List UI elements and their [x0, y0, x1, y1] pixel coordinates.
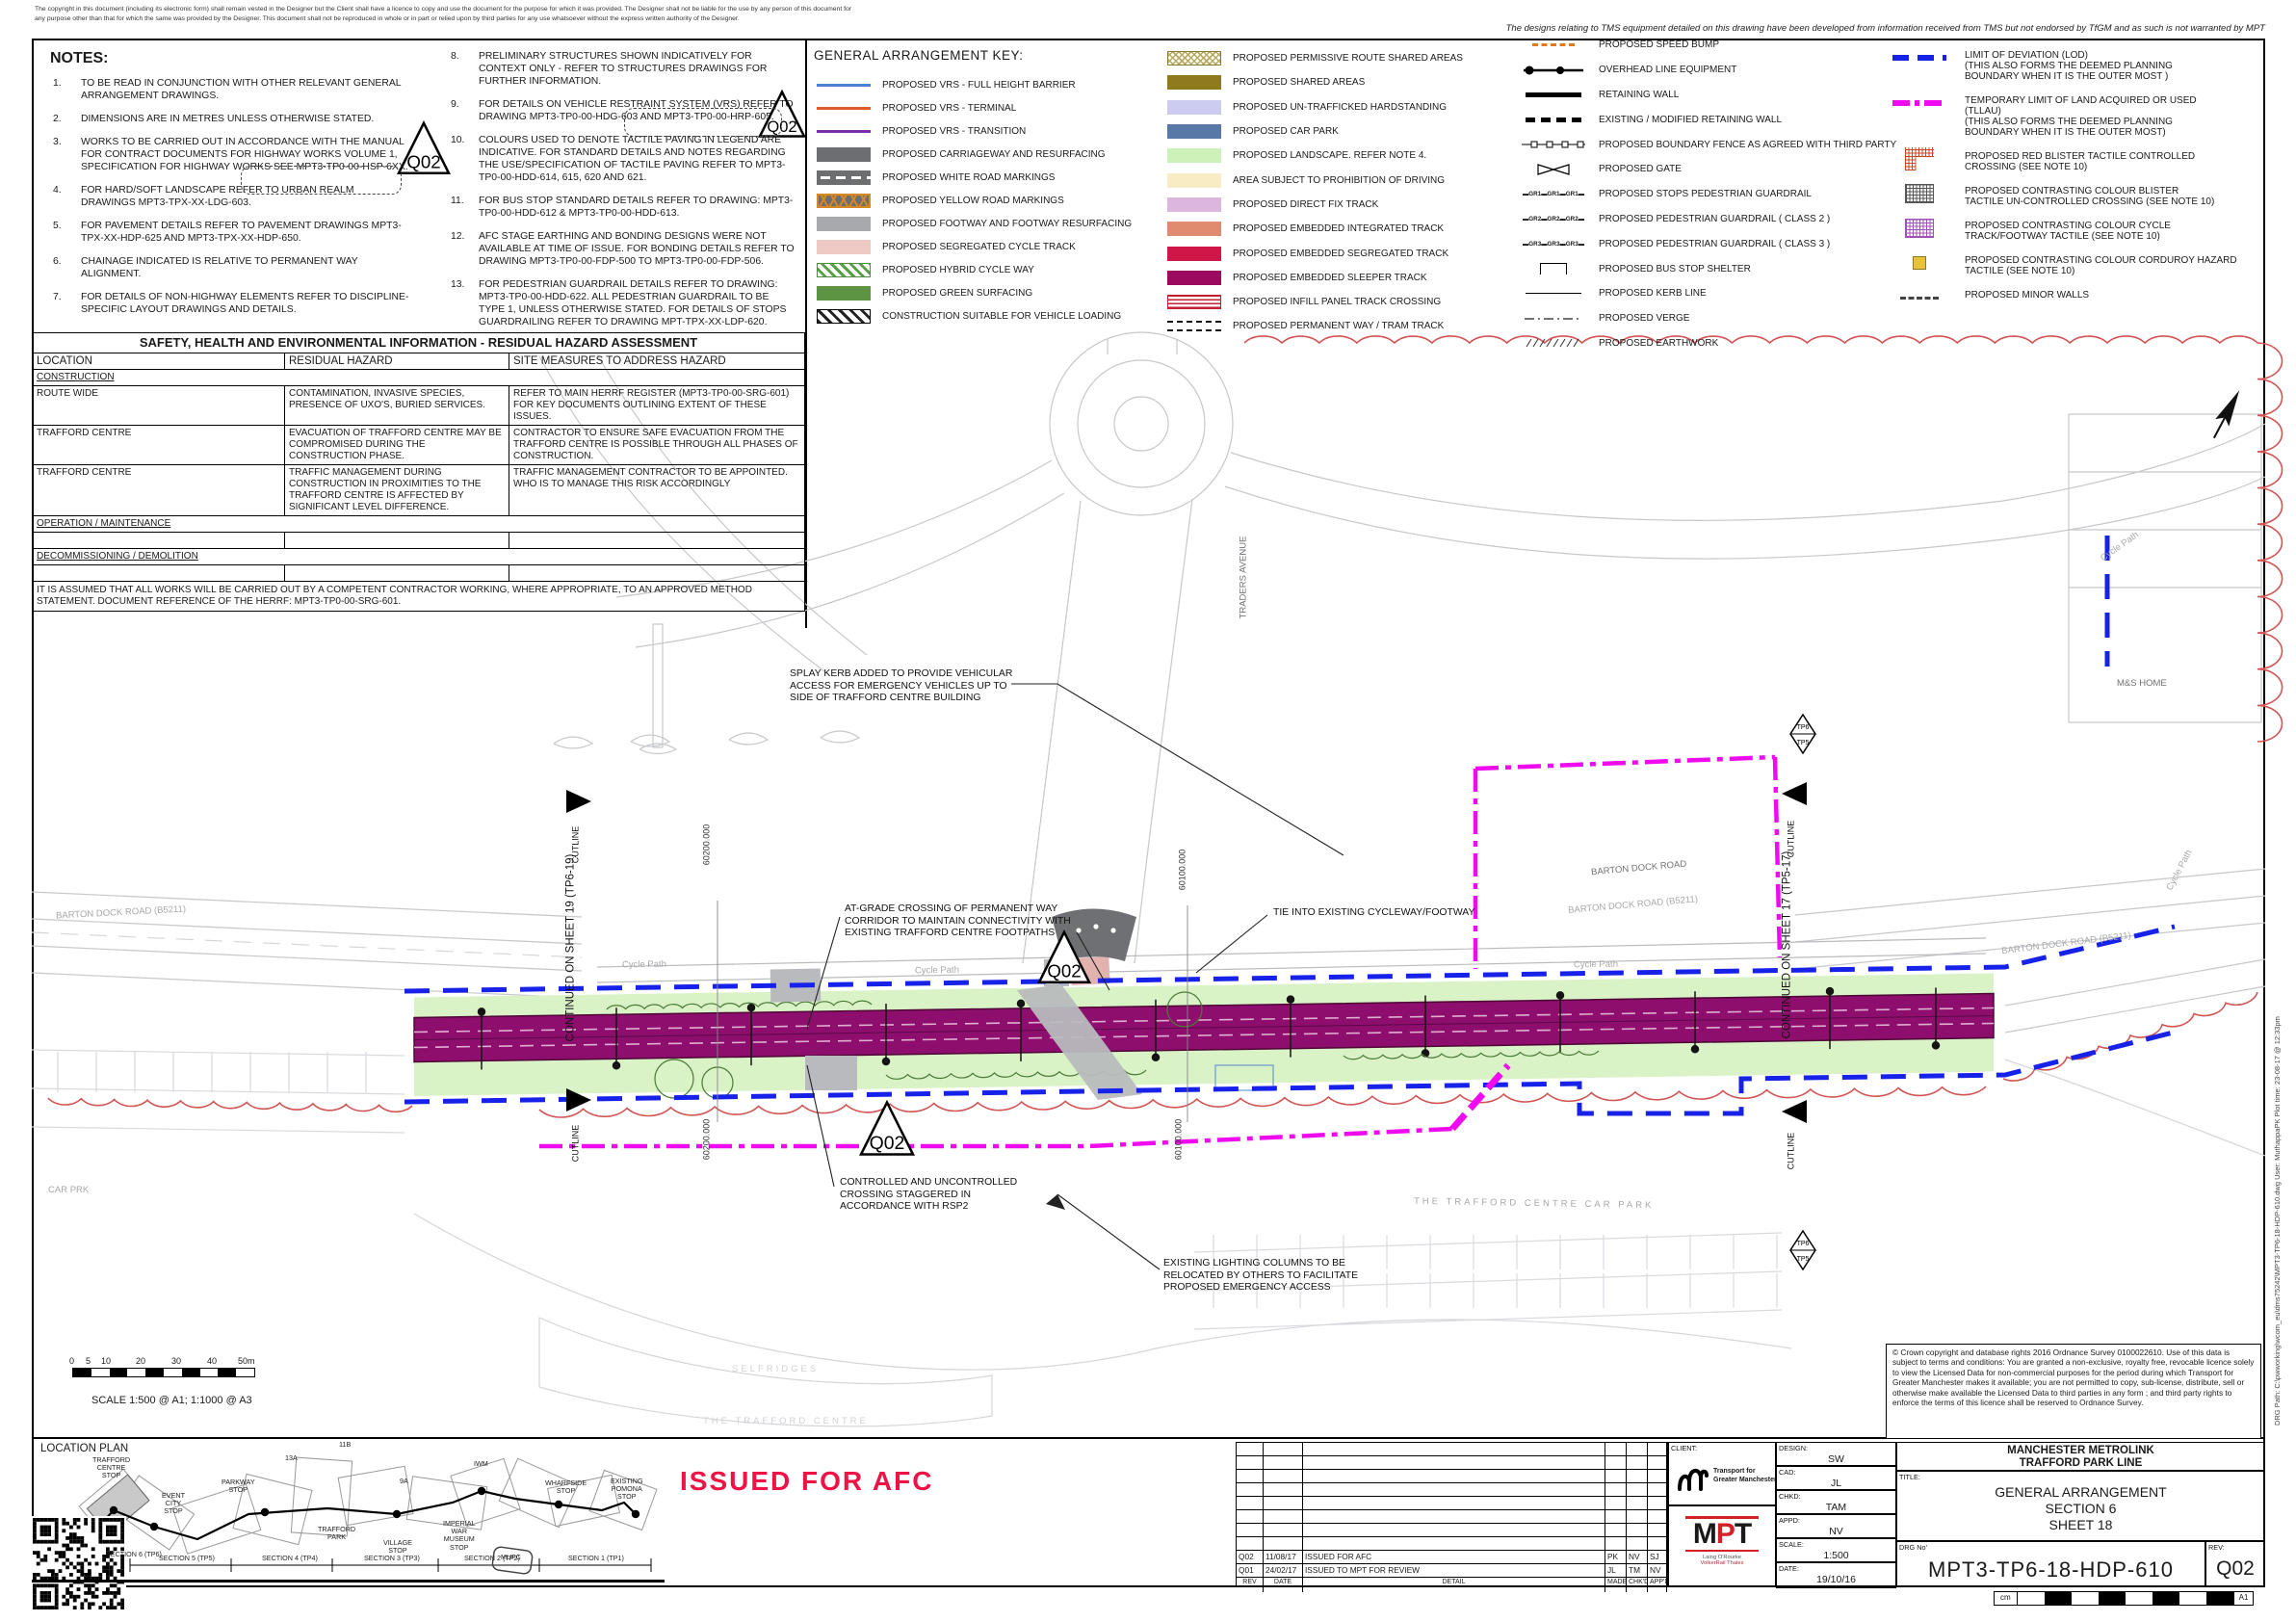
key-item: PROPOSED DIRECT FIX TRACK: [1167, 193, 1463, 217]
revision-cell: [1648, 1510, 1667, 1523]
field-label: DESIGN:: [1779, 1444, 1808, 1452]
field-label: CAD:: [1779, 1468, 1795, 1477]
revision-row: Q0124/02/17ISSUED TO MPT FOR REVIEWJLTMN…: [1237, 1563, 1667, 1577]
plan-annotation: CONTROLLED AND UNCONTROLLED CROSSING STA…: [840, 1177, 1017, 1214]
location-plan-stop-label: PARKWAY STOP: [222, 1478, 255, 1494]
tram-corridor: [414, 974, 1994, 1099]
scale-bar-strip: [72, 1368, 255, 1377]
key-item: PROPOSED CONTRASTING COLOUR CYCLE TRACK/…: [1886, 221, 2237, 242]
key-item: PROPOSED CARRIAGEWAY AND RESURFACING: [817, 143, 1132, 166]
note-number: 12.: [451, 230, 470, 268]
key-item: RETAINING WALL: [1520, 83, 1896, 108]
key-item: PROPOSED RED BLISTER TACTILE CONTROLLED …: [1886, 151, 2237, 172]
key-item-label: PROPOSED PEDESTRIAN GUARDRAIL ( CLASS 2 …: [1599, 214, 1830, 224]
scale-bar-segment: [91, 1369, 110, 1376]
note-item: 11.FOR BUS STOP STANDARD DETAILS REFER T…: [451, 195, 796, 220]
scale-bar-label: 50m: [238, 1356, 255, 1366]
key-item: PROPOSED VRS - FULL HEIGHT BARRIER: [817, 73, 1132, 96]
field-cell-chkd: CHKD:TAM: [1776, 1490, 1896, 1514]
key-swatch: [1167, 51, 1221, 65]
field-label: DATE:: [1779, 1564, 1799, 1573]
location-plan-stop-label: WHARFSIDE STOP: [545, 1479, 587, 1495]
revision-cell: [1605, 1443, 1627, 1455]
drg-path-text: DRG Path: C:\pwworking\wcom_eu\dms75242\…: [2273, 1016, 2282, 1426]
revision-cell: [1264, 1443, 1303, 1455]
chainage-label: 60100.000: [1173, 1119, 1183, 1161]
q02-triangle: Q02: [861, 1103, 913, 1155]
revision-cell: [1605, 1497, 1627, 1509]
key-swatch: [817, 286, 871, 301]
revision-cell: REV: [1237, 1578, 1264, 1592]
key-item: PROPOSED VRS - TRANSITION: [817, 119, 1132, 143]
note-number: 9.: [451, 98, 470, 123]
field-label: APPD:: [1779, 1516, 1800, 1525]
hazard-footnote: IT IS ASSUMED THAT ALL WORKS WILL BE CAR…: [33, 582, 804, 611]
scale-bar-label: 30: [171, 1356, 181, 1366]
corduroy-icon: [1886, 255, 1953, 271]
mpt-sub2: VolkerRail Thales: [1669, 1560, 1775, 1566]
revision-cell: [1264, 1537, 1303, 1550]
revision-cell: [1237, 1456, 1264, 1469]
key-item-label: PROPOSED FOOTWAY AND FOOTWAY RESURFACING: [882, 219, 1132, 229]
revision-cell: ISSUED TO MPT FOR REVIEW: [1303, 1564, 1605, 1577]
revision-cell: [1648, 1537, 1667, 1550]
hazard-header-row: LOCATIONRESIDUAL HAZARDSITE MEASURES TO …: [33, 353, 804, 370]
revision-cell: [1264, 1497, 1303, 1509]
scale-bar-segment: [164, 1369, 182, 1376]
revision-cell: [1237, 1510, 1264, 1523]
note-item: 10.COLOURS USED TO DENOTE TACTILE PAVING…: [451, 134, 796, 184]
revision-cell: [1237, 1524, 1264, 1536]
notes-title: NOTES:: [50, 50, 108, 67]
key-item: PROPOSED BUS STOP SHELTER: [1520, 256, 1896, 281]
revision-cell: APP'D: [1648, 1578, 1667, 1592]
svg-text:TP6: TP6: [1797, 724, 1810, 731]
key-item-label: PROPOSED CONTRASTING COLOUR BLISTER TACT…: [1965, 186, 2214, 207]
tfgm-logo-icon: [1677, 1464, 1709, 1493]
key-item-label: PROPOSED EMBEDDED INTEGRATED TRACK: [1233, 223, 1444, 234]
location-plan-stop-label: EXISTING POMONA STOP: [611, 1478, 643, 1502]
key-item: PROPOSED WHITE ROAD MARKINGS: [817, 166, 1132, 189]
key-swatch: [817, 240, 871, 254]
note3-revision-cloud: [241, 166, 402, 195]
hazard-table-title: SAFETY, HEALTH AND ENVIRONMENTAL INFORMA…: [33, 332, 804, 353]
revision-cell: [1627, 1510, 1648, 1523]
drg-no-label: DRG No': [1899, 1543, 1927, 1552]
note-text: COLOURS USED TO DENOTE TACTILE PAVING IN…: [479, 134, 796, 184]
drg-no-value: MPT3-TP6-18-HDP-610: [1897, 1557, 2205, 1583]
key-item-label: PROPOSED BUS STOP SHELTER: [1599, 264, 1751, 275]
key-swatch: [817, 170, 871, 185]
hazard-cell: [33, 533, 285, 548]
revision-cell: SJ: [1648, 1551, 1667, 1563]
key-item: PROPOSED BOUNDARY FENCE AS AGREED WITH T…: [1520, 132, 1896, 157]
title-label: TITLE:: [1899, 1473, 1920, 1481]
location-plan-plot-label: 9A: [400, 1478, 408, 1485]
hazard-cell: TRAFFIC MANAGEMENT CONTRACTOR TO BE APPO…: [509, 465, 804, 515]
key-item-label: PROPOSED DIRECT FIX TRACK: [1233, 199, 1378, 210]
revision-row: [1237, 1469, 1667, 1482]
scale-bar-label: 40: [207, 1356, 217, 1366]
redblister-icon: [1886, 151, 1953, 167]
scale-bar-segment: [73, 1369, 91, 1376]
key-item-label: PROPOSED GREEN SURFACING: [882, 288, 1032, 299]
client-name: Transport for Greater Manchester: [1713, 1468, 1777, 1484]
field-cell-appd: APPD:NV: [1776, 1514, 1896, 1538]
key-item: PROPOSED UN-TRAFFICKED HARDSTANDING: [1167, 95, 1463, 119]
rev-value: Q02: [2206, 1557, 2264, 1581]
qr-code: [31, 1516, 126, 1611]
key-item: PROPOSED SHARED AREAS: [1167, 70, 1463, 94]
key-item-label: OVERHEAD LINE EQUIPMENT: [1599, 65, 1736, 75]
revision-cell: [1648, 1483, 1667, 1496]
scale-bar-segment: [127, 1369, 145, 1376]
ruler-segments: [2018, 1591, 2234, 1606]
revision-cell: [1605, 1524, 1627, 1536]
key-item-label: PROPOSED WHITE ROAD MARKINGS: [882, 172, 1055, 183]
location-plan-stop-label: IWM: [474, 1460, 488, 1468]
key-item: PROPOSED CONTRASTING COLOUR BLISTER TACT…: [1886, 186, 2237, 207]
hazard-cell: CONTRACTOR TO ENSURE SAFE EVACUATION FRO…: [509, 426, 804, 464]
mpt-logo: MPT: [1669, 1519, 1775, 1550]
road-label: M&S HOME: [2117, 678, 2167, 689]
key-item-label: PROPOSED MINOR WALLS: [1965, 290, 2089, 301]
revision-cell: [1605, 1483, 1627, 1496]
contractor-cell: MPT Laing O'Rourke VolkerRail Thales: [1668, 1505, 1776, 1587]
key-column-1: PROPOSED VRS - FULL HEIGHT BARRIERPROPOS…: [817, 73, 1132, 327]
revision-cell: [1303, 1443, 1605, 1455]
revision-row: [1237, 1509, 1667, 1523]
scale-bar-segment: [218, 1369, 236, 1376]
note-number: 11.: [451, 195, 470, 220]
field-cell-date: DATE:19/10/16: [1776, 1562, 1896, 1588]
hazard-row: ROUTE WIDECONTAMINATION, INVASIVE SPECIE…: [33, 386, 804, 426]
project-line1: MANCHESTER METROLINK: [1897, 1445, 2264, 1457]
revision-cell: Q01: [1237, 1564, 1264, 1577]
chainage-label: 60200.000: [701, 1119, 711, 1161]
mpt-logo-bar-bottom: [1685, 1550, 1759, 1552]
key-item: PROPOSED YELLOW ROAD MARKINGS: [817, 189, 1132, 212]
svg-text:Q02: Q02: [1047, 961, 1081, 981]
hazard-column-header: SITE MEASURES TO ADDRESS HAZARD: [509, 353, 804, 369]
revision-cell: [1264, 1524, 1303, 1536]
key-swatch: [1167, 222, 1221, 236]
note-text: CHAINAGE INDICATED IS RELATIVE TO PERMAN…: [81, 255, 409, 280]
ruler-segment: [2179, 1592, 2206, 1605]
key-item: ▬GR1▬GR1▬GR1▬PROPOSED STOPS PEDESTRIAN G…: [1520, 182, 1896, 207]
note-number: 5.: [53, 220, 72, 245]
key-item: PROPOSED CAR PARK: [1167, 119, 1463, 144]
location-plan-section-label: SECTION 6 (TP6): [106, 1551, 162, 1558]
hazard-row: [33, 533, 804, 549]
key-item-label: PROPOSED VRS - TRANSITION: [882, 126, 1026, 137]
key-title: GENERAL ARRANGEMENT KEY:: [814, 48, 1024, 63]
key-swatch: [1167, 247, 1221, 261]
scale-bar-label: 0: [69, 1356, 74, 1366]
key-item: PROPOSED VERGE: [1520, 306, 1896, 331]
key-item-label: PROPOSED KERB LINE: [1599, 288, 1707, 299]
field-cell-scale: SCALE:1:500: [1776, 1538, 1896, 1562]
key-item-label: PROPOSED SPEED BUMP: [1599, 39, 1719, 50]
cutline-label-4: CUTLINE: [1786, 1133, 1795, 1170]
road-label: Cycle Path: [622, 959, 666, 971]
note-text: TO BE READ IN CONJUNCTION WITH OTHER REL…: [81, 77, 409, 102]
drawing-sheet: The copyright in this document (includin…: [0, 0, 2296, 1622]
key-item: PROPOSED CONTRASTING COLOUR CORDUROY HAZ…: [1886, 255, 2237, 276]
revision-cell: [1648, 1470, 1667, 1482]
scale-bar-segment: [110, 1369, 128, 1376]
location-plan-stop-label: TRAFFORD PARK: [318, 1526, 355, 1541]
note-number: 6.: [53, 255, 72, 280]
note-text: FOR PAVEMENT DETAILS REFER TO PAVEMENT D…: [81, 220, 409, 245]
cutline-label-3: CUTLINE: [1786, 821, 1795, 858]
key-swatch: [817, 107, 871, 110]
revision-row: [1237, 1496, 1667, 1509]
hazard-column-header: RESIDUAL HAZARD: [285, 353, 509, 369]
key-item: TEMPORARY LIMIT OF LAND ACQUIRED OR USED…: [1886, 95, 2237, 138]
note-number: 2.: [53, 113, 72, 125]
key-item-label: PROPOSED GATE: [1599, 164, 1682, 174]
revision-cell: [1237, 1497, 1264, 1509]
revision-row: [1237, 1443, 1667, 1455]
tllau-icon: [1886, 95, 1953, 111]
revision-cell: [1648, 1456, 1667, 1469]
drg-no-cell: DRG No' MPT3-TP6-18-HDP-610: [1896, 1541, 2205, 1587]
svg-text:TP5: TP5: [1797, 1256, 1810, 1263]
hazard-section-header: DECOMMISSIONING / DEMOLITION: [33, 549, 804, 565]
hazard-section-header: OPERATION / MAINTENANCE: [33, 516, 804, 533]
scale-bar-label: 5: [86, 1356, 91, 1366]
revision-cell: [1264, 1470, 1303, 1482]
revision-cell: CHK'D: [1627, 1578, 1648, 1592]
hazard-column-header: LOCATION: [33, 353, 285, 369]
key-item-label: PROPOSED PERMANENT WAY / TRAM TRACK: [1233, 321, 1444, 331]
earthwork-icon: [1520, 335, 1587, 351]
hazard-row: TRAFFORD CENTRETRAFFIC MANAGEMENT DURING…: [33, 465, 804, 516]
key-item-label: PROPOSED BOUNDARY FENCE AS AGREED WITH T…: [1599, 140, 1896, 150]
revision-cell: [1605, 1510, 1627, 1523]
key-item-label: LIMIT OF DEVIATION (LOD) (THIS ALSO FORM…: [1965, 50, 2173, 82]
gr3-icon: ▬GR3▬GR3▬GR3▬: [1520, 236, 1587, 251]
ruler-segment: [2072, 1592, 2099, 1605]
hazard-cell: REFER TO MAIN HERRF REGISTER (MPT3-TP0-0…: [509, 386, 804, 425]
scale-bar-segment: [182, 1369, 200, 1376]
note-item: 2.DIMENSIONS ARE IN METRES UNLESS OTHERW…: [53, 113, 409, 125]
key-item-label: PROPOSED PEDESTRIAN GUARDRAIL ( CLASS 3 …: [1599, 239, 1830, 249]
svg-text:TP5: TP5: [1797, 740, 1810, 746]
scale-bar-label: 10: [101, 1356, 111, 1366]
plan-annotation: TIE INTO EXISTING CYCLEWAY/FOOTWAY: [1273, 907, 1474, 920]
key-item-label: PROPOSED HYBRID CYCLE WAY: [882, 265, 1034, 275]
hazard-cell: ROUTE WIDE: [33, 386, 285, 425]
road-label: SELFRIDGES: [732, 1364, 819, 1374]
hazard-row: TRAFFORD CENTREEVACUATION OF TRAFFORD CE…: [33, 426, 804, 465]
field-label: CHKD:: [1779, 1492, 1801, 1501]
note-number: 7.: [53, 291, 72, 316]
revision-cell: Q02: [1237, 1551, 1264, 1563]
key-item: OVERHEAD LINE EQUIPMENT: [1520, 58, 1896, 83]
kerb-icon: [1520, 286, 1587, 301]
scale-bar: 051020304050m: [72, 1356, 255, 1377]
location-plan-stop-label: TRAFFORD CENTRE STOP: [92, 1456, 130, 1480]
greyblister-icon: [1886, 186, 1953, 201]
location-plan-section-label: SECTION 3 (TP3): [364, 1555, 420, 1562]
hazard-cell: [285, 533, 509, 548]
key-item-label: PROPOSED STOPS PEDESTRIAN GUARDRAIL: [1599, 189, 1812, 199]
key-column-2: PROPOSED PERMISSIVE ROUTE SHARED AREASPR…: [1167, 46, 1463, 339]
scale-bar-label: 20: [136, 1356, 145, 1366]
revision-cell: [1303, 1483, 1605, 1496]
revision-cell: [1627, 1524, 1648, 1536]
key-item-label: TEMPORARY LIMIT OF LAND ACQUIRED OR USED…: [1965, 95, 2197, 138]
revision-cell: TM: [1627, 1564, 1648, 1577]
field-cell-design: DESIGN:SW: [1776, 1442, 1896, 1466]
key-item: ▬GR3▬GR3▬GR3▬PROPOSED PEDESTRIAN GUARDRA…: [1520, 231, 1896, 256]
key-item: PROPOSED EMBEDDED SEGREGATED TRACK: [1167, 241, 1463, 265]
key-swatch: [1167, 148, 1221, 163]
hazard-cell: [33, 565, 285, 581]
rev-label: REV:: [2208, 1543, 2225, 1552]
field-cell-cad: CAD:JL: [1776, 1466, 1896, 1490]
field-value: TAM: [1777, 1502, 1895, 1513]
note-number: 4.: [53, 184, 72, 209]
svg-text:Q02: Q02: [406, 152, 440, 172]
revision-cell: [1264, 1456, 1303, 1469]
revision-cell: [1303, 1470, 1605, 1482]
key-item: PROPOSED INFILL PANEL TRACK CROSSING: [1167, 290, 1463, 314]
plan-annotation: SPLAY KERB ADDED TO PROVIDE VEHICULAR AC…: [790, 668, 1012, 705]
location-plan-plot-label: 13A: [285, 1454, 298, 1462]
note-item: 1.TO BE READ IN CONJUNCTION WITH OTHER R…: [53, 77, 409, 102]
revision-cell: [1648, 1443, 1667, 1455]
svg-text:TP6: TP6: [1797, 1241, 1810, 1247]
key-item: PROPOSED EMBEDDED SLEEPER TRACK: [1167, 266, 1463, 290]
note-text: PRELIMINARY STRUCTURES SHOWN INDICATIVEL…: [479, 50, 796, 88]
chainage-label: 60100.000: [1177, 850, 1187, 891]
key-item: PROPOSED EMBEDDED INTEGRATED TRACK: [1167, 217, 1463, 241]
hazard-cell: TRAFFORD CENTRE: [33, 465, 285, 515]
note-item: 8.PRELIMINARY STRUCTURES SHOWN INDICATIV…: [451, 50, 796, 88]
location-plan-stop-label: IMPERIAL WAR MUSEUM STOP: [443, 1520, 476, 1552]
key-item: PROPOSED HYBRID CYCLE WAY: [817, 258, 1132, 281]
gate-icon: [1520, 162, 1587, 177]
key-item: PROPOSED MINOR WALLS: [1886, 290, 2237, 305]
key-item: PROPOSED GATE: [1520, 157, 1896, 182]
revision-cell: [1303, 1497, 1605, 1509]
hazard-row: [33, 565, 804, 582]
leader-arrowhead: [1046, 1194, 1065, 1210]
svg-text:Q02: Q02: [870, 1133, 905, 1154]
revision-cell: [1264, 1483, 1303, 1496]
revision-cell: [1605, 1537, 1627, 1550]
title-cell: TITLE: GENERAL ARRANGEMENT SECTION 6 SHE…: [1896, 1471, 2265, 1541]
revision-row: [1237, 1523, 1667, 1536]
scale-bar-segment: [145, 1369, 164, 1376]
retwall-icon: [1520, 87, 1587, 102]
scale-bar-segment: [236, 1369, 254, 1376]
fence-icon: [1520, 137, 1587, 152]
hazard-cell: [509, 533, 804, 548]
scale-bar-segment: [200, 1369, 219, 1376]
hazard-cell: TRAFFIC MANAGEMENT DURING CONSTRUCTION I…: [285, 465, 509, 515]
rev-cell: REV: Q02: [2205, 1541, 2265, 1587]
road-label: TRADERS AVENUE: [1238, 536, 1248, 619]
note-item: 6.CHAINAGE INDICATED IS RELATIVE TO PERM…: [53, 255, 409, 280]
revision-cell: NV: [1648, 1564, 1667, 1577]
road-label: THE TRAFFORD CENTRE: [703, 1416, 869, 1426]
key-item: ▬GR2▬GR2▬GR2▬PROPOSED PEDESTRIAN GUARDRA…: [1520, 207, 1896, 232]
revision-cell: [1648, 1524, 1667, 1536]
field-label: SCALE:: [1779, 1540, 1804, 1549]
revision-cell: [1237, 1470, 1264, 1482]
key-item: PROPOSED FOOTWAY AND FOOTWAY RESURFACING: [817, 212, 1132, 235]
note-text: FOR PEDESTRIAN GUARDRAIL DETAILS REFER T…: [479, 278, 796, 328]
location-plan-stop-label: EVENT CITY STOP: [162, 1492, 185, 1516]
revision-cell: MADE: [1605, 1578, 1627, 1592]
road-label: Cycle Path: [915, 965, 959, 977]
note-number: 8.: [451, 50, 470, 88]
revision-cell: [1627, 1470, 1648, 1482]
os-copyright-note: © Crown copyright and database rights 20…: [1886, 1344, 2261, 1439]
key-item: AREA SUBJECT TO PROHIBITION OF DRIVING: [1167, 168, 1463, 192]
key-item-label: PROPOSED CONTRASTING COLOUR CORDUROY HAZ…: [1965, 255, 2237, 276]
revision-row: [1237, 1536, 1667, 1550]
note-text: FOR BUS STOP STANDARD DETAILS REFER TO D…: [479, 195, 796, 220]
client-cell: CLIENT: Transport for Greater Manchester: [1668, 1442, 1776, 1505]
ruler-segment: [2045, 1592, 2072, 1605]
notes-list-right: 8.PRELIMINARY STRUCTURES SHOWN INDICATIV…: [451, 50, 796, 339]
note-item: 12.AFC STAGE EARTHING AND BONDING DESIGN…: [451, 230, 796, 268]
key-item-label: PROPOSED CAR PARK: [1233, 126, 1339, 137]
key-item: PROPOSED SEGREGATED CYCLE TRACK: [817, 235, 1132, 258]
ruler-unit: cm: [1994, 1591, 2018, 1606]
key-item-label: PROPOSED VERGE: [1599, 313, 1689, 324]
tllau-line-south: [539, 1129, 1452, 1146]
note-item: 7.FOR DETAILS OF NON-HIGHWAY ELEMENTS RE…: [53, 291, 409, 316]
key-swatch: [1167, 173, 1221, 188]
key-item-label: PROPOSED PERMISSIVE ROUTE SHARED AREAS: [1233, 53, 1463, 64]
revision-cell: DETAIL: [1303, 1578, 1605, 1592]
continued-left-label: CONTINUED ON SHEET 19 (TP6-19): [564, 854, 576, 1042]
revision-cell: [1303, 1537, 1605, 1550]
key-swatch: [1167, 271, 1221, 285]
key-swatch: [1167, 197, 1221, 212]
location-plan-title: LOCATION PLAN: [40, 1443, 128, 1454]
drawing-title-line2: SECTION 6: [1897, 1501, 2264, 1517]
continued-right-label: CONTINUED ON SHEET 17 (TP5-17): [1781, 851, 1792, 1039]
gr1-icon: ▬GR1▬GR1▬GR1▬: [1520, 187, 1587, 202]
key-swatch: [817, 194, 871, 208]
key-swatch: [817, 147, 871, 162]
key-item-label: RETAINING WALL: [1599, 90, 1679, 100]
field-value: 1:500: [1777, 1550, 1895, 1561]
hazard-cell: EVACUATION OF TRAFFORD CENTRE MAY BE COM…: [285, 426, 509, 464]
revision-cell: [1303, 1456, 1605, 1469]
key-item-label: EXISTING / MODIFIED RETAINING WALL: [1599, 115, 1782, 125]
revision-cell: [1627, 1497, 1648, 1509]
key-item-label: PROPOSED RED BLISTER TACTILE CONTROLLED …: [1965, 151, 2195, 172]
field-value: JL: [1777, 1478, 1895, 1489]
revision-cell: [1605, 1456, 1627, 1469]
revision-cell: [1303, 1510, 1605, 1523]
revision-cell: [1627, 1443, 1648, 1455]
drawing-title-line3: SHEET 18: [1897, 1517, 2264, 1533]
key-item: EXISTING / MODIFIED RETAINING WALL: [1520, 107, 1896, 132]
key-column-3: PROPOSED SPEED BUMPOVERHEAD LINE EQUIPME…: [1520, 33, 1896, 355]
revision-row: Q0211/08/17ISSUED FOR AFCPKNVSJ: [1237, 1550, 1667, 1563]
key-item: PROPOSED GREEN SURFACING: [817, 281, 1132, 304]
location-plan-plot-label: 11B: [339, 1441, 351, 1449]
